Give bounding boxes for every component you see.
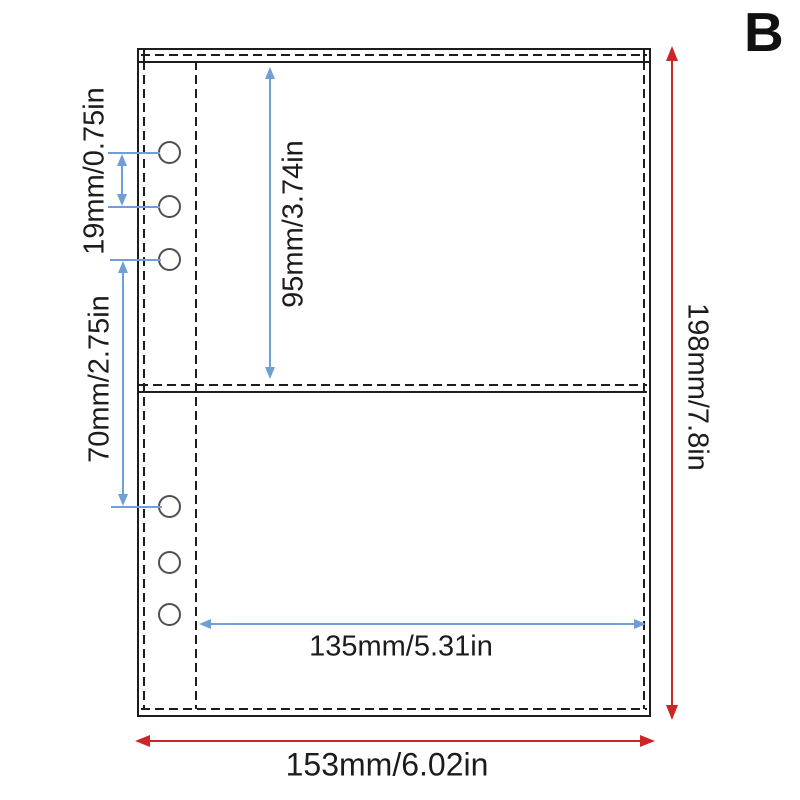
- arrow-down-icon: [265, 367, 275, 379]
- bottom-stitch-dashed-line: [141, 708, 647, 710]
- right-stitch-dashed-line: [643, 61, 645, 709]
- top-pocket-height-label: 95mm/3.74in: [278, 140, 311, 308]
- left-stitch-dashed-line: [143, 61, 145, 709]
- dim-tick-line: [111, 506, 162, 508]
- pocket-width-label: 135mm/5.31in: [309, 631, 493, 664]
- dim-arrow-line: [671, 56, 673, 710]
- diagram-canvas: B 19mm/0.75in 70mm/2.75in 95mm/3.74i: [0, 0, 800, 800]
- page-width-label: 153mm/6.02in: [286, 747, 489, 784]
- arrow-down-icon: [117, 194, 127, 206]
- top-stitch-dashed-line: [141, 54, 647, 56]
- arrow-up-icon: [265, 67, 275, 79]
- arrow-right-icon: [640, 735, 655, 747]
- dim-arrow-line: [122, 265, 124, 501]
- arrow-up-icon: [117, 154, 127, 166]
- arrow-right-icon: [634, 619, 646, 629]
- binder-hole-6: [158, 603, 181, 626]
- dim-arrow-line: [269, 72, 271, 374]
- binder-hole-5: [158, 551, 181, 574]
- dim-tick-line: [108, 206, 160, 208]
- middle-stitch-dashed-line: [139, 384, 647, 386]
- arrow-up-icon: [666, 46, 678, 61]
- dim-arrow-line: [144, 740, 646, 742]
- top-left-corner-stub: [143, 48, 145, 62]
- figure-label: B: [744, 0, 784, 64]
- arrow-down-icon: [118, 494, 128, 506]
- top-seam-line: [139, 61, 649, 63]
- binder-hole-2: [158, 195, 181, 218]
- binder-hole-3: [158, 248, 181, 271]
- binding-strip-dashed-line: [195, 61, 197, 709]
- middle-seam-line: [139, 391, 647, 393]
- arrow-left-icon: [135, 735, 150, 747]
- arrow-up-icon: [118, 261, 128, 273]
- dim-tick-line: [108, 152, 160, 154]
- dim-arrow-line: [206, 623, 642, 625]
- album-page-outline: [137, 48, 651, 717]
- page-height-label: 198mm/7.8in: [681, 303, 714, 471]
- arrow-left-icon: [199, 619, 211, 629]
- binder-hole-1: [158, 141, 181, 164]
- hole-group-gap-label: 70mm/2.75in: [84, 295, 117, 463]
- hole-spacing-label: 19mm/0.75in: [79, 87, 112, 255]
- arrow-down-icon: [666, 705, 678, 720]
- top-right-corner-stub: [643, 48, 645, 62]
